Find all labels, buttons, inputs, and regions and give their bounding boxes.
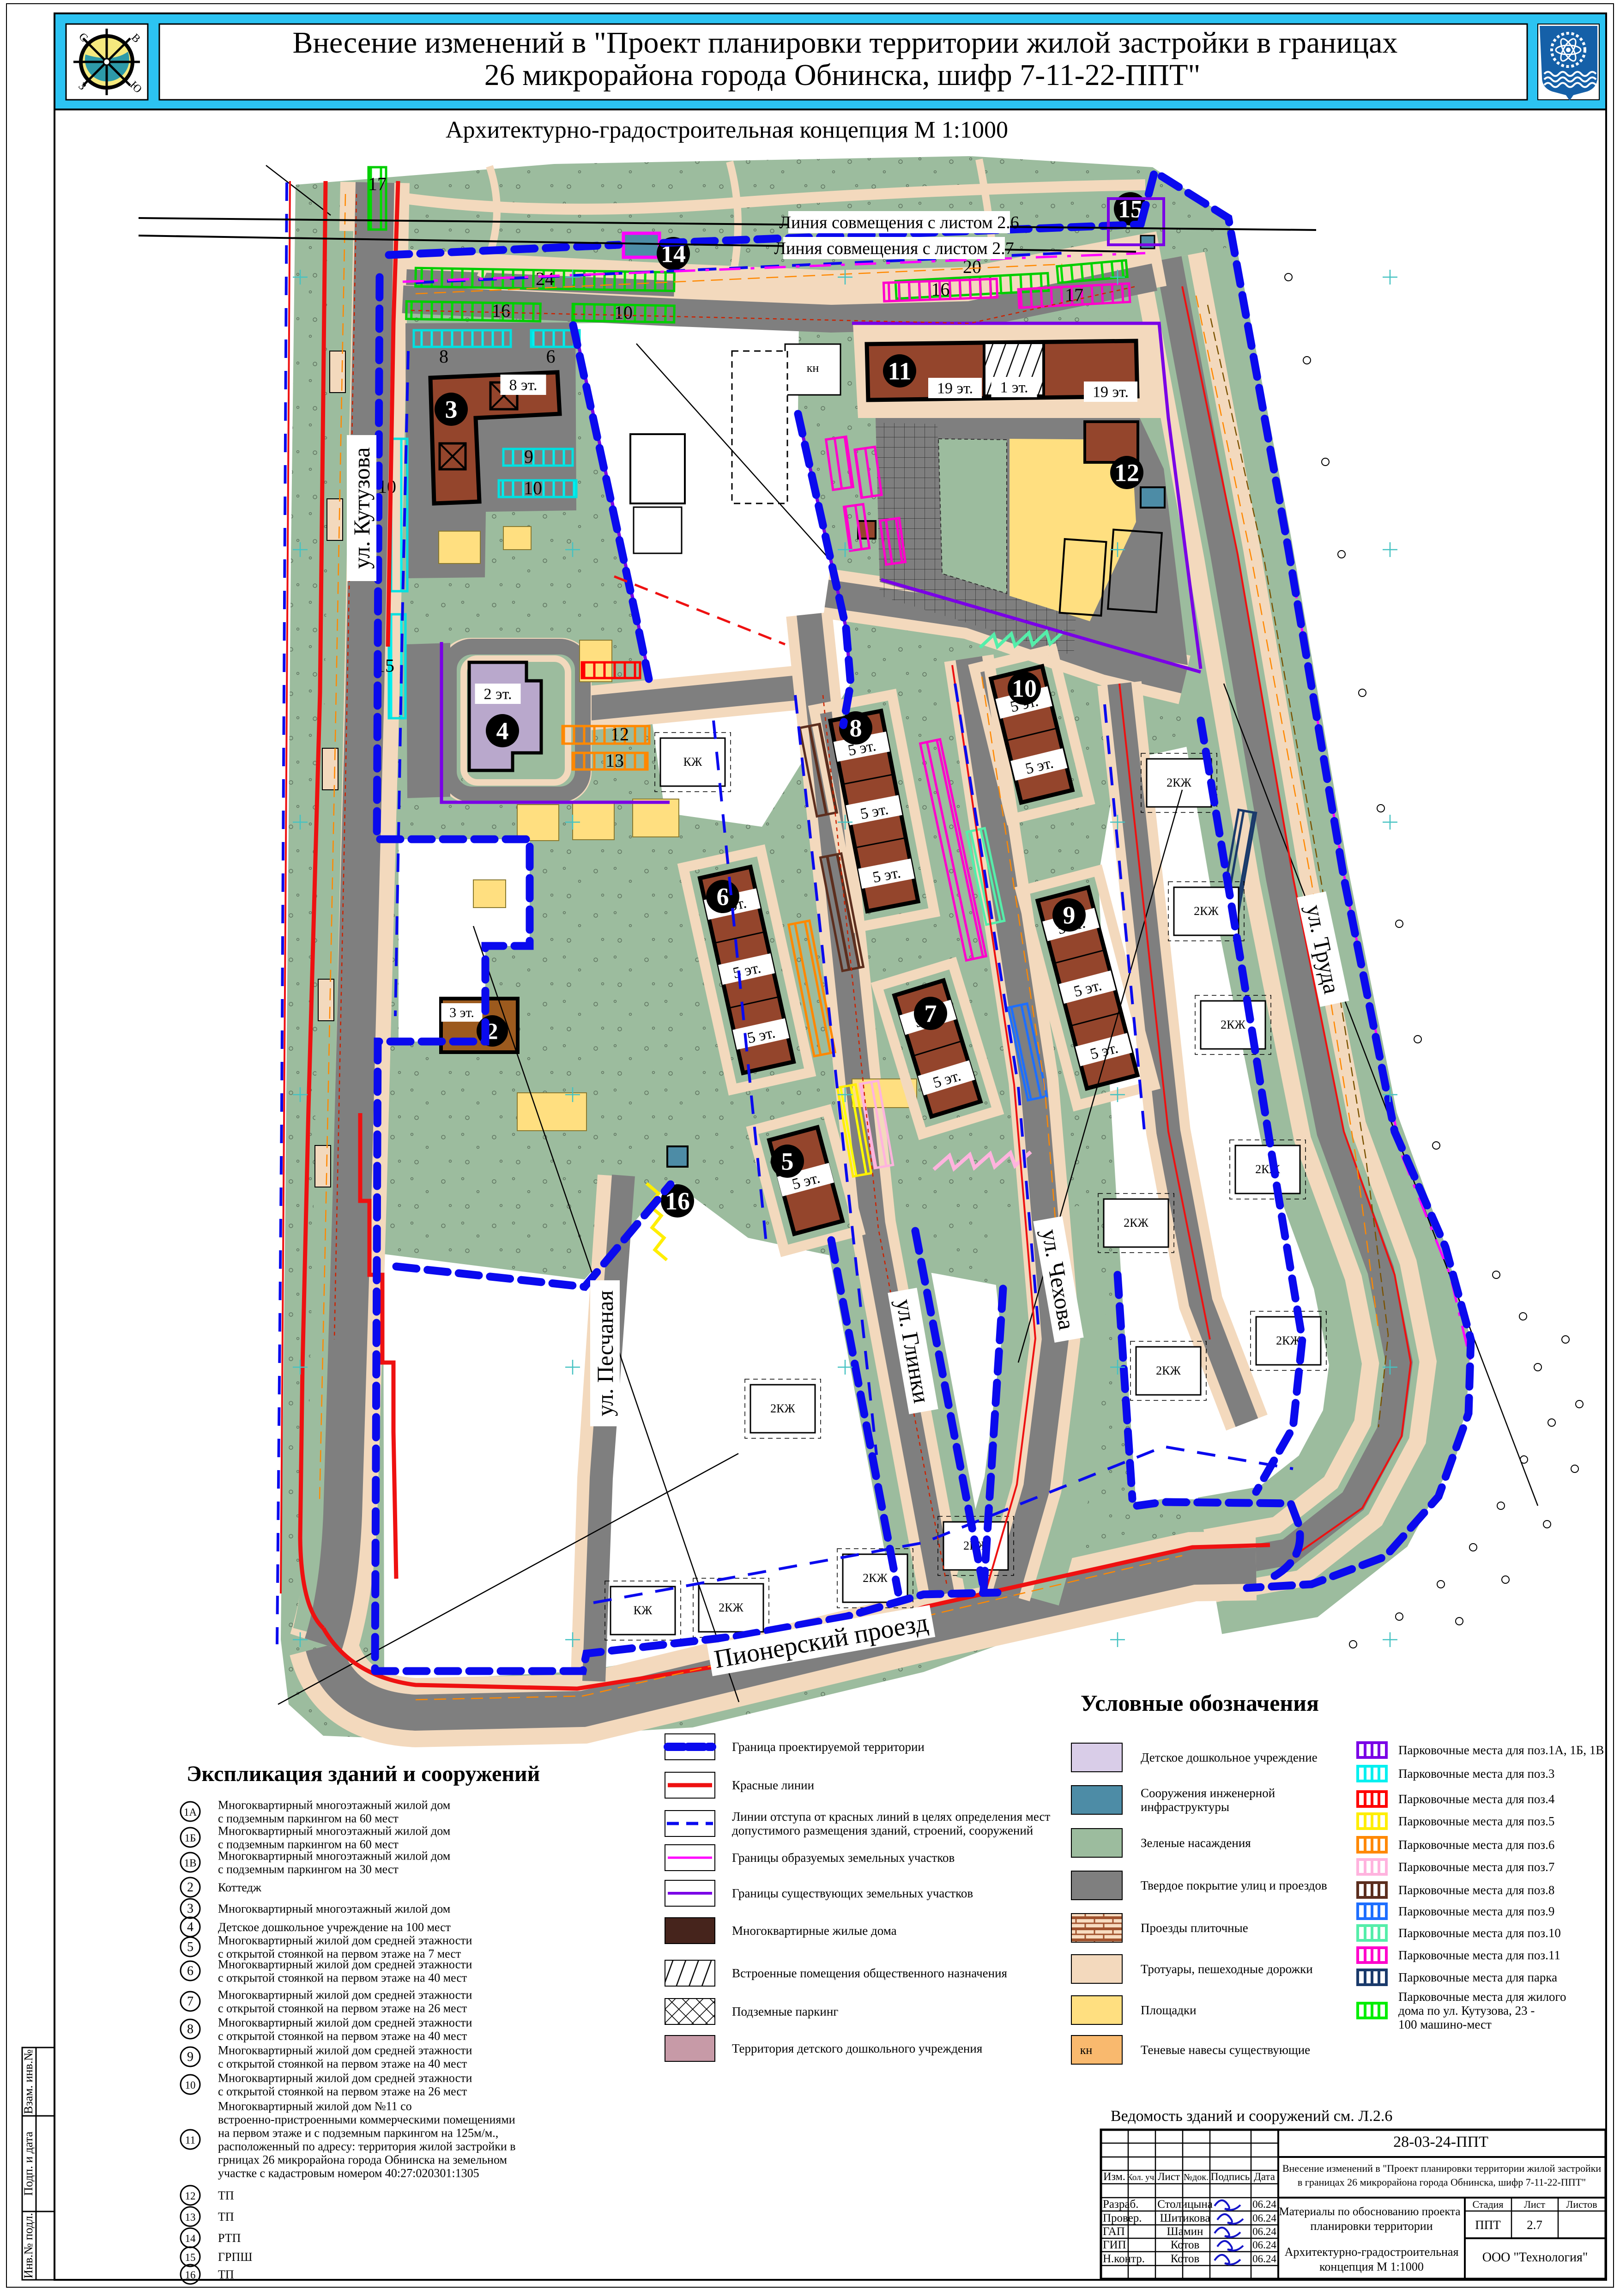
svg-text:4: 4 [496, 717, 509, 745]
svg-text:12: 12 [611, 724, 629, 745]
svg-text:Красные линии: Красные линии [732, 1778, 814, 1792]
svg-text:ГИП: ГИП [1103, 2239, 1126, 2251]
svg-text:Дата: Дата [1254, 2171, 1275, 2182]
svg-text:15: 15 [185, 2252, 196, 2263]
svg-text:Кол. уч.: Кол. уч. [1127, 2173, 1156, 2182]
svg-text:ТП: ТП [218, 2268, 234, 2281]
svg-text:Лист: Лист [1158, 2171, 1180, 2182]
svg-text:Парковочные места для парка: Парковочные места для парка [1398, 1970, 1557, 1984]
svg-text:с открытой стоянкой на первом: с открытой стоянкой на первом этаже на 4… [218, 2057, 467, 2071]
svg-text:Границы образуемых земельных у: Границы образуемых земельных участков [732, 1851, 955, 1865]
svg-text:ООО "Технология": ООО "Технология" [1482, 2250, 1588, 2265]
svg-text:28-03-24-ППТ: 28-03-24-ППТ [1393, 2133, 1488, 2151]
svg-text:4: 4 [187, 1920, 193, 1934]
svg-text:Условные обозначения: Условные обозначения [1081, 1690, 1319, 1716]
svg-text:Сооружения инженерной: Сооружения инженерной [1141, 1786, 1275, 1800]
svg-text:Лист: Лист [1524, 2199, 1545, 2210]
svg-text:06.24: 06.24 [1252, 2253, 1276, 2265]
svg-text:Многоквартирный жилой дом сре: Многоквартирный жилой дом средней этажно… [218, 2044, 472, 2057]
svg-text:Подземные паркинг: Подземные паркинг [732, 2005, 838, 2018]
svg-text:06.24: 06.24 [1252, 2199, 1276, 2210]
svg-text:9: 9 [524, 446, 533, 467]
svg-text:Линии отступа от красных линий: Линии отступа от красных линий в целях о… [732, 1810, 1051, 1823]
svg-text:Детское дошкольное учреждение: Детское дошкольное учреждение на 100 мес… [218, 1920, 451, 1934]
svg-text:8: 8 [187, 2022, 193, 2036]
svg-text:6: 6 [717, 883, 729, 910]
svg-text:Территория детского дошкольног: Территория детского дошкольного учрежден… [732, 2042, 982, 2055]
svg-text:06.24: 06.24 [1252, 2239, 1276, 2251]
svg-text:Парковочные места для поз.5: Парковочные места для поз.5 [1398, 1814, 1554, 1828]
svg-text:Коттедж: Коттедж [218, 1881, 262, 1894]
svg-text:1 эт.: 1 эт. [1000, 379, 1028, 396]
svg-text:Многоквартирный жилой дом №11: Многоквартирный жилой дом №11 со [218, 2100, 412, 2113]
svg-text:Многоквартирные жилые дома: Многоквартирные жилые дома [732, 1924, 897, 1938]
svg-text:Тротуары, пешеходные дорожки: Тротуары, пешеходные дорожки [1141, 1962, 1313, 1976]
svg-text:Подп. и дата: Подп. и дата [22, 2132, 35, 2196]
svg-text:Встроенные помещения обществен: Встроенные помещения общественного назна… [732, 1966, 1007, 1980]
svg-text:2КЖ: 2КЖ [1194, 904, 1219, 918]
svg-text:Шитикова: Шитикова [1160, 2212, 1210, 2224]
svg-text:11: 11 [185, 2134, 195, 2146]
svg-text:7: 7 [925, 1000, 937, 1027]
svg-text:КЖ: КЖ [634, 1604, 653, 1617]
svg-text:Детское дошкольное учреждение: Детское дошкольное учреждение [1141, 1751, 1318, 1764]
svg-text:Парковочные места для поз.11: Парковочные места для поз.11 [1398, 1948, 1560, 1962]
svg-text:кн: кн [1080, 2043, 1093, 2057]
svg-text:2КЖ: 2КЖ [770, 1402, 795, 1415]
svg-text:13: 13 [185, 2211, 196, 2223]
svg-text:1В: 1В [184, 1857, 197, 1869]
svg-text:Внесение изменений в "Проект п: Внесение изменений в "Проект планировки … [293, 26, 1398, 60]
svg-text:Подпись: Подпись [1211, 2171, 1250, 2182]
svg-text:Парковочные места для поз.8: Парковочные места для поз.8 [1398, 1883, 1554, 1897]
svg-text:Зеленые насаждения: Зеленые насаждения [1141, 1836, 1251, 1850]
svg-text:Парковочные места для поз.3: Парковочные места для поз.3 [1398, 1767, 1554, 1781]
svg-text:на первом этаже и с подземным: на первом этаже и с подземным паркингом … [218, 2126, 498, 2140]
svg-text:24: 24 [536, 268, 554, 289]
svg-text:расположенный по адресу: терри: расположенный по адресу: территория жило… [218, 2140, 516, 2153]
svg-text:РТП: РТП [218, 2231, 241, 2245]
svg-text:16: 16 [185, 2269, 196, 2281]
svg-text:10: 10 [1012, 674, 1037, 702]
svg-text:8 эт.: 8 эт. [509, 377, 538, 394]
svg-text:Парковочные места для поз.4: Парковочные места для поз.4 [1398, 1792, 1555, 1806]
svg-text:2КЖ: 2КЖ [719, 1601, 744, 1614]
svg-text:26 микрорайона города Обнинска: 26 микрорайона города Обнинска, шифр 7-1… [484, 58, 1201, 92]
svg-text:2КЖ: 2КЖ [1156, 1364, 1181, 1377]
svg-text:Разраб.: Разраб. [1103, 2198, 1138, 2211]
svg-text:2: 2 [187, 1880, 193, 1895]
svg-text:7: 7 [187, 1994, 193, 2009]
svg-text:2 эт.: 2 эт. [484, 686, 512, 703]
svg-text:2КЖ: 2КЖ [1276, 1334, 1301, 1347]
svg-text:Многоквартирный жилой дом сре: Многоквартирный жилой дом средней этажно… [218, 2072, 472, 2085]
svg-text:17: 17 [368, 174, 387, 194]
svg-text:ГРПШ: ГРПШ [218, 2250, 253, 2264]
svg-text:10: 10 [185, 2079, 196, 2091]
svg-text:5: 5 [187, 1940, 193, 1954]
svg-text:14: 14 [185, 2233, 196, 2244]
svg-text:8: 8 [439, 346, 448, 367]
svg-text:19 эт.: 19 эт. [1093, 384, 1129, 401]
svg-text:Котов: Котов [1171, 2239, 1200, 2251]
svg-text:Многоквартирный жилой дом сре: Многоквартирный жилой дом средней этажно… [218, 1958, 472, 1971]
svg-text:ГАП: ГАП [1103, 2225, 1125, 2238]
svg-text:11: 11 [888, 357, 911, 385]
svg-text:19 эт.: 19 эт. [937, 380, 973, 397]
svg-text:концепция М 1:1000: концепция М 1:1000 [1319, 2260, 1424, 2273]
svg-text:1Б: 1Б [185, 1832, 196, 1844]
svg-text:кн: кн [807, 361, 819, 375]
svg-text:3: 3 [445, 395, 458, 423]
svg-text:грницах 26 микрорайона города: грницах 26 микрорайона города Обнинска н… [218, 2153, 507, 2167]
svg-text:допустимого размещения зданий,: допустимого размещения зданий, строений,… [732, 1823, 1033, 1837]
svg-text:ТП: ТП [218, 2189, 234, 2202]
svg-text:Многоквартирный многоэтажный ж: Многоквартирный многоэтажный жилой дом [218, 1902, 450, 1915]
svg-text:06.24: 06.24 [1252, 2212, 1276, 2224]
svg-text:10: 10 [524, 478, 542, 498]
svg-text:Котов: Котов [1171, 2253, 1200, 2265]
svg-text:с подземным паркингом на 60 ме: с подземным паркингом на 60 мест [218, 1812, 399, 1825]
svg-text:с открытой стоянкой на первом: с открытой стоянкой на первом этаже на 4… [218, 1971, 467, 1985]
svg-text:ул. Кутузова: ул. Кутузова [349, 447, 375, 569]
svg-text:2КЖ: 2КЖ [1221, 1018, 1245, 1031]
svg-text:1А: 1А [184, 1806, 197, 1818]
svg-text:Линия совмещения с листом 2.6: Линия совмещения с листом 2.6 [779, 213, 1019, 232]
svg-text:Архитектурно-градостроительная: Архитектурно-градостроительная [1285, 2245, 1459, 2259]
svg-text:№док.: №док. [1184, 2172, 1209, 2182]
svg-text:Многоквартирный многоэтажный ж: Многоквартирный многоэтажный жилой дом [218, 1799, 450, 1812]
svg-text:Внесение изменений в "Проект п: Внесение изменений в "Проект планировки … [1282, 2163, 1602, 2174]
svg-text:инфраструктуры: инфраструктуры [1141, 1800, 1229, 1814]
svg-text:Изм.: Изм. [1103, 2171, 1125, 2183]
svg-text:участке с кадастровым номером: участке с кадастровым номером 40:27:0203… [218, 2167, 479, 2180]
svg-text:9: 9 [1063, 901, 1076, 929]
svg-text:16: 16 [492, 300, 510, 321]
svg-text:с открытой стоянкой на первом: с открытой стоянкой на первом этаже на 2… [218, 2002, 467, 2015]
svg-text:Многоквартирный жилой дом сре: Многоквартирный жилой дом средней этажно… [218, 1988, 472, 2002]
svg-text:с открытой стоянкой на первом: с открытой стоянкой на первом этаже на 2… [218, 2085, 467, 2098]
svg-text:17: 17 [1065, 285, 1083, 305]
svg-text:Экспликация зданий и сооружени: Экспликация зданий и сооружений [187, 1762, 540, 1786]
svg-text:06.24: 06.24 [1252, 2226, 1276, 2237]
svg-text:Материалы по обоснованию проек: Материалы по обоснованию проекта [1279, 2205, 1460, 2218]
svg-text:Ведомость зданий и сооружений: Ведомость зданий и сооружений см. Л.2.6 [1111, 2108, 1392, 2125]
svg-text:Парковочные места для поз.6: Парковочные места для поз.6 [1398, 1838, 1554, 1852]
svg-text:Границы существующих земельных: Границы существующих земельных участков [732, 1886, 973, 1900]
svg-text:Шамин: Шамин [1167, 2225, 1203, 2238]
svg-text:Многоквартирный многоэтажный ж: Многоквартирный многоэтажный жилой дом [218, 1849, 450, 1863]
svg-text:Парковочные места для поз.7: Парковочные места для поз.7 [1398, 1860, 1554, 1874]
svg-text:Теневые навесы существующие: Теневые навесы существующие [1141, 2043, 1310, 2057]
svg-text:ППТ: ППТ [1475, 2218, 1501, 2232]
svg-text:2.7: 2.7 [1527, 2218, 1542, 2232]
svg-text:ТП: ТП [218, 2210, 234, 2223]
svg-text:8: 8 [850, 714, 862, 742]
svg-text:2КЖ: 2КЖ [1167, 776, 1191, 789]
svg-text:Твердое покрытие улиц и проезд: Твердое покрытие улиц и проездов [1141, 1878, 1327, 1892]
svg-text:Многоквартирный жилой дом сре: Многоквартирный жилой дом средней этажно… [218, 2016, 472, 2029]
svg-text:Многоквартирный многоэтажный ж: Многоквартирный многоэтажный жилой дом [218, 1824, 450, 1838]
svg-text:планировки территории: планировки территории [1310, 2219, 1433, 2233]
svg-text:Линия совмещения с листом 2.7: Линия совмещения с листом 2.7 [774, 239, 1014, 258]
svg-text:Парковочные места для поз.1А,: Парковочные места для поз.1А, 1Б, 1В [1398, 1743, 1604, 1757]
svg-text:Н.контр.: Н.контр. [1103, 2253, 1145, 2265]
svg-text:3: 3 [187, 1902, 193, 1916]
svg-text:встроенно-пристроенными коммер: встроенно-пристроенными коммерческими по… [218, 2113, 515, 2126]
svg-text:5: 5 [781, 1147, 794, 1175]
svg-text:Взам. инв.№: Взам. инв.№ [22, 2049, 35, 2114]
svg-text:Столицына: Столицына [1157, 2198, 1213, 2211]
svg-text:16: 16 [931, 279, 950, 300]
svg-text:с подземным паркингом на 30 ме: с подземным паркингом на 30 мест [218, 1863, 399, 1876]
svg-text:дома по ул. Кутузова, 23 -: дома по ул. Кутузова, 23 - [1398, 2004, 1535, 2017]
svg-text:Инв.№ подл.: Инв.№ подл. [22, 2213, 35, 2278]
svg-text:в границах 26 микрорайона горо: в границах 26 микрорайона города Обнинск… [1298, 2176, 1586, 2188]
svg-text:12: 12 [185, 2190, 196, 2202]
svg-text:12: 12 [1114, 459, 1139, 486]
svg-text:Проезды плиточные: Проезды плиточные [1141, 1921, 1248, 1935]
svg-text:6: 6 [187, 1964, 193, 1978]
svg-text:Многоквартирный жилой дом сре: Многоквартирный жилой дом средней этажно… [218, 1934, 472, 1947]
svg-text:Площадки: Площадки [1141, 2003, 1197, 2017]
svg-text:Провер.: Провер. [1103, 2212, 1142, 2224]
svg-text:100 машино-мест: 100 машино-мест [1398, 2017, 1492, 2031]
svg-text:6: 6 [546, 346, 556, 367]
svg-text:Архитектурно-градостроительная: Архитектурно-градостроительная концепция… [446, 117, 1008, 143]
svg-text:Парковочные места для поз.9: Парковочные места для поз.9 [1398, 1904, 1554, 1918]
svg-text:Листов: Листов [1566, 2199, 1597, 2210]
svg-text:10: 10 [614, 302, 633, 323]
svg-text:Граница проектируемой территор: Граница проектируемой территории [732, 1740, 925, 1754]
svg-text:КЖ: КЖ [683, 755, 702, 769]
svg-text:2КЖ: 2КЖ [1124, 1216, 1149, 1230]
svg-text:Стадия: Стадия [1472, 2199, 1503, 2210]
svg-text:3 эт.: 3 эт. [449, 1005, 474, 1020]
svg-text:9: 9 [187, 2050, 193, 2064]
svg-text:Парковочные места для жилого: Парковочные места для жилого [1398, 1990, 1566, 2004]
svg-text:13: 13 [605, 750, 624, 771]
svg-text:ул. Песчаная: ул. Песчаная [592, 1290, 618, 1417]
svg-text:2КЖ: 2КЖ [863, 1571, 888, 1585]
svg-text:с открытой стоянкой на первом: с открытой стоянкой на первом этаже на 4… [218, 2029, 467, 2043]
svg-text:Парковочные места для поз.10: Парковочные места для поз.10 [1398, 1926, 1561, 1940]
